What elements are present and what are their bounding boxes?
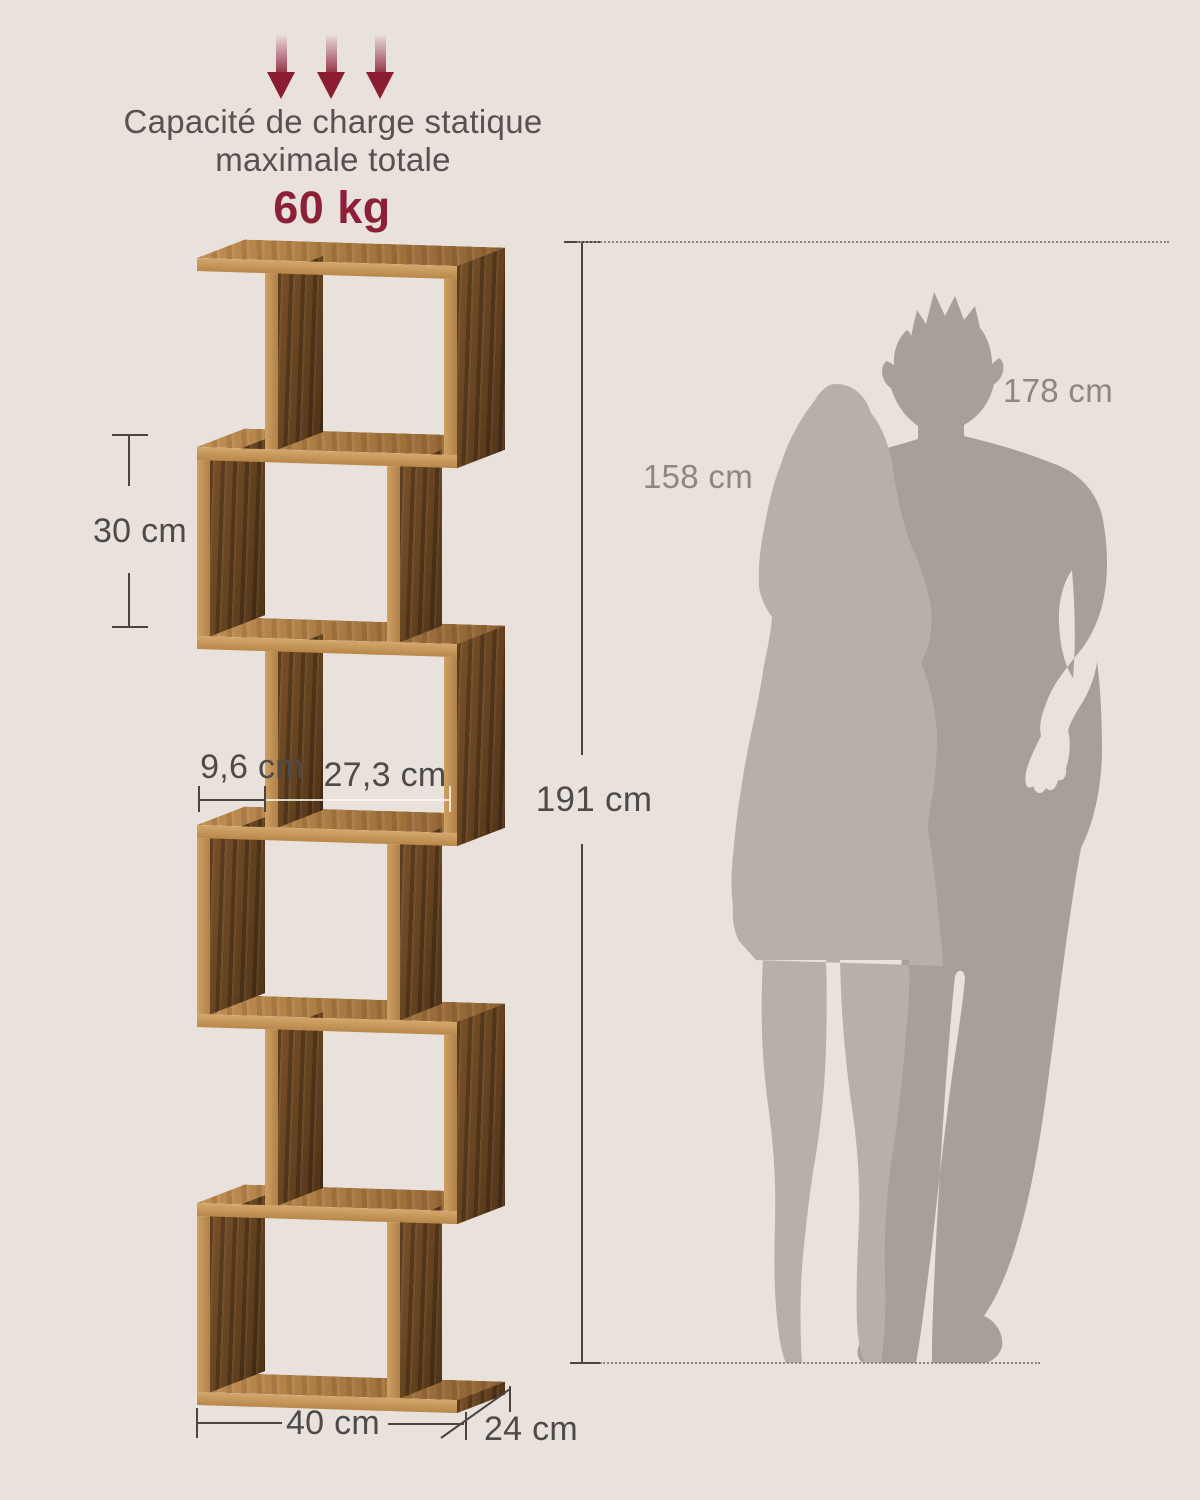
inner-width-label: 27,3 cm [323,756,446,795]
dimension-tick [465,1412,467,1440]
dimension-line [200,799,265,801]
shelf-divider [387,844,400,1020]
down-arrow-icon [326,34,337,74]
dimension-cap [570,1362,600,1364]
shelf-divider [387,466,400,642]
total-height-label: 191 cm [536,780,653,820]
shelf-side-panel [457,624,505,848]
shelf-side-panel [457,246,505,470]
dimension-line [581,242,583,755]
shelf-right-panel-front [444,1035,457,1211]
shelf-divider-side [400,448,442,643]
shelf-left-panel-side [210,815,265,1016]
dimension-line [128,434,130,486]
depth-label: 24 cm [484,1410,578,1449]
product-infographic: Capacité de charge statique maximale tot… [0,0,1200,1500]
shelf-left-panel-side [210,437,265,638]
shelf-divider-side [278,1011,323,1207]
shelf-left-panel [197,1216,210,1392]
down-arrow-icon [276,34,287,74]
shelf-side-panel [457,1002,505,1226]
dimension-line [581,844,583,1364]
shelf-right-panel-front [444,279,457,455]
shelf-left-panel [197,460,210,636]
width-label: 40 cm [286,1404,380,1443]
dimension-line [128,573,130,626]
down-arrow-icon [375,34,386,74]
shelf-divider [265,651,278,827]
shelf-left-panel [197,838,210,1014]
load-capacity-line2: maximale totale [215,141,451,179]
notch-width-label: 9,6 cm [200,748,304,787]
dimension-tick [509,1386,511,1412]
shelf-divider [265,1029,278,1205]
dimension-cap [112,626,148,628]
tier-height-label: 30 cm [93,512,187,551]
shelf-divider [387,1222,400,1398]
load-capacity-line1: Capacité de charge statique [123,103,542,141]
shelf-divider [265,273,278,449]
dimension-line [266,799,450,801]
woman-height-label: 158 cm [643,458,753,496]
dimension-cap [112,434,148,436]
shelf-divider-side [400,1204,442,1399]
ground-reference-line [600,1362,1040,1364]
man-height-label: 178 cm [1003,372,1113,410]
load-capacity-value: 60 kg [273,182,391,234]
shelf-divider-side [400,826,442,1021]
size-comparison-silhouettes [560,270,1160,1390]
bookshelf [197,242,505,1432]
shelf-divider-side [278,255,323,451]
top-reference-line [577,241,1169,243]
dimension-line [388,1423,464,1425]
dimension-tick [449,786,451,812]
shelf-left-panel-side [210,1193,265,1394]
dimension-line [198,1422,282,1424]
